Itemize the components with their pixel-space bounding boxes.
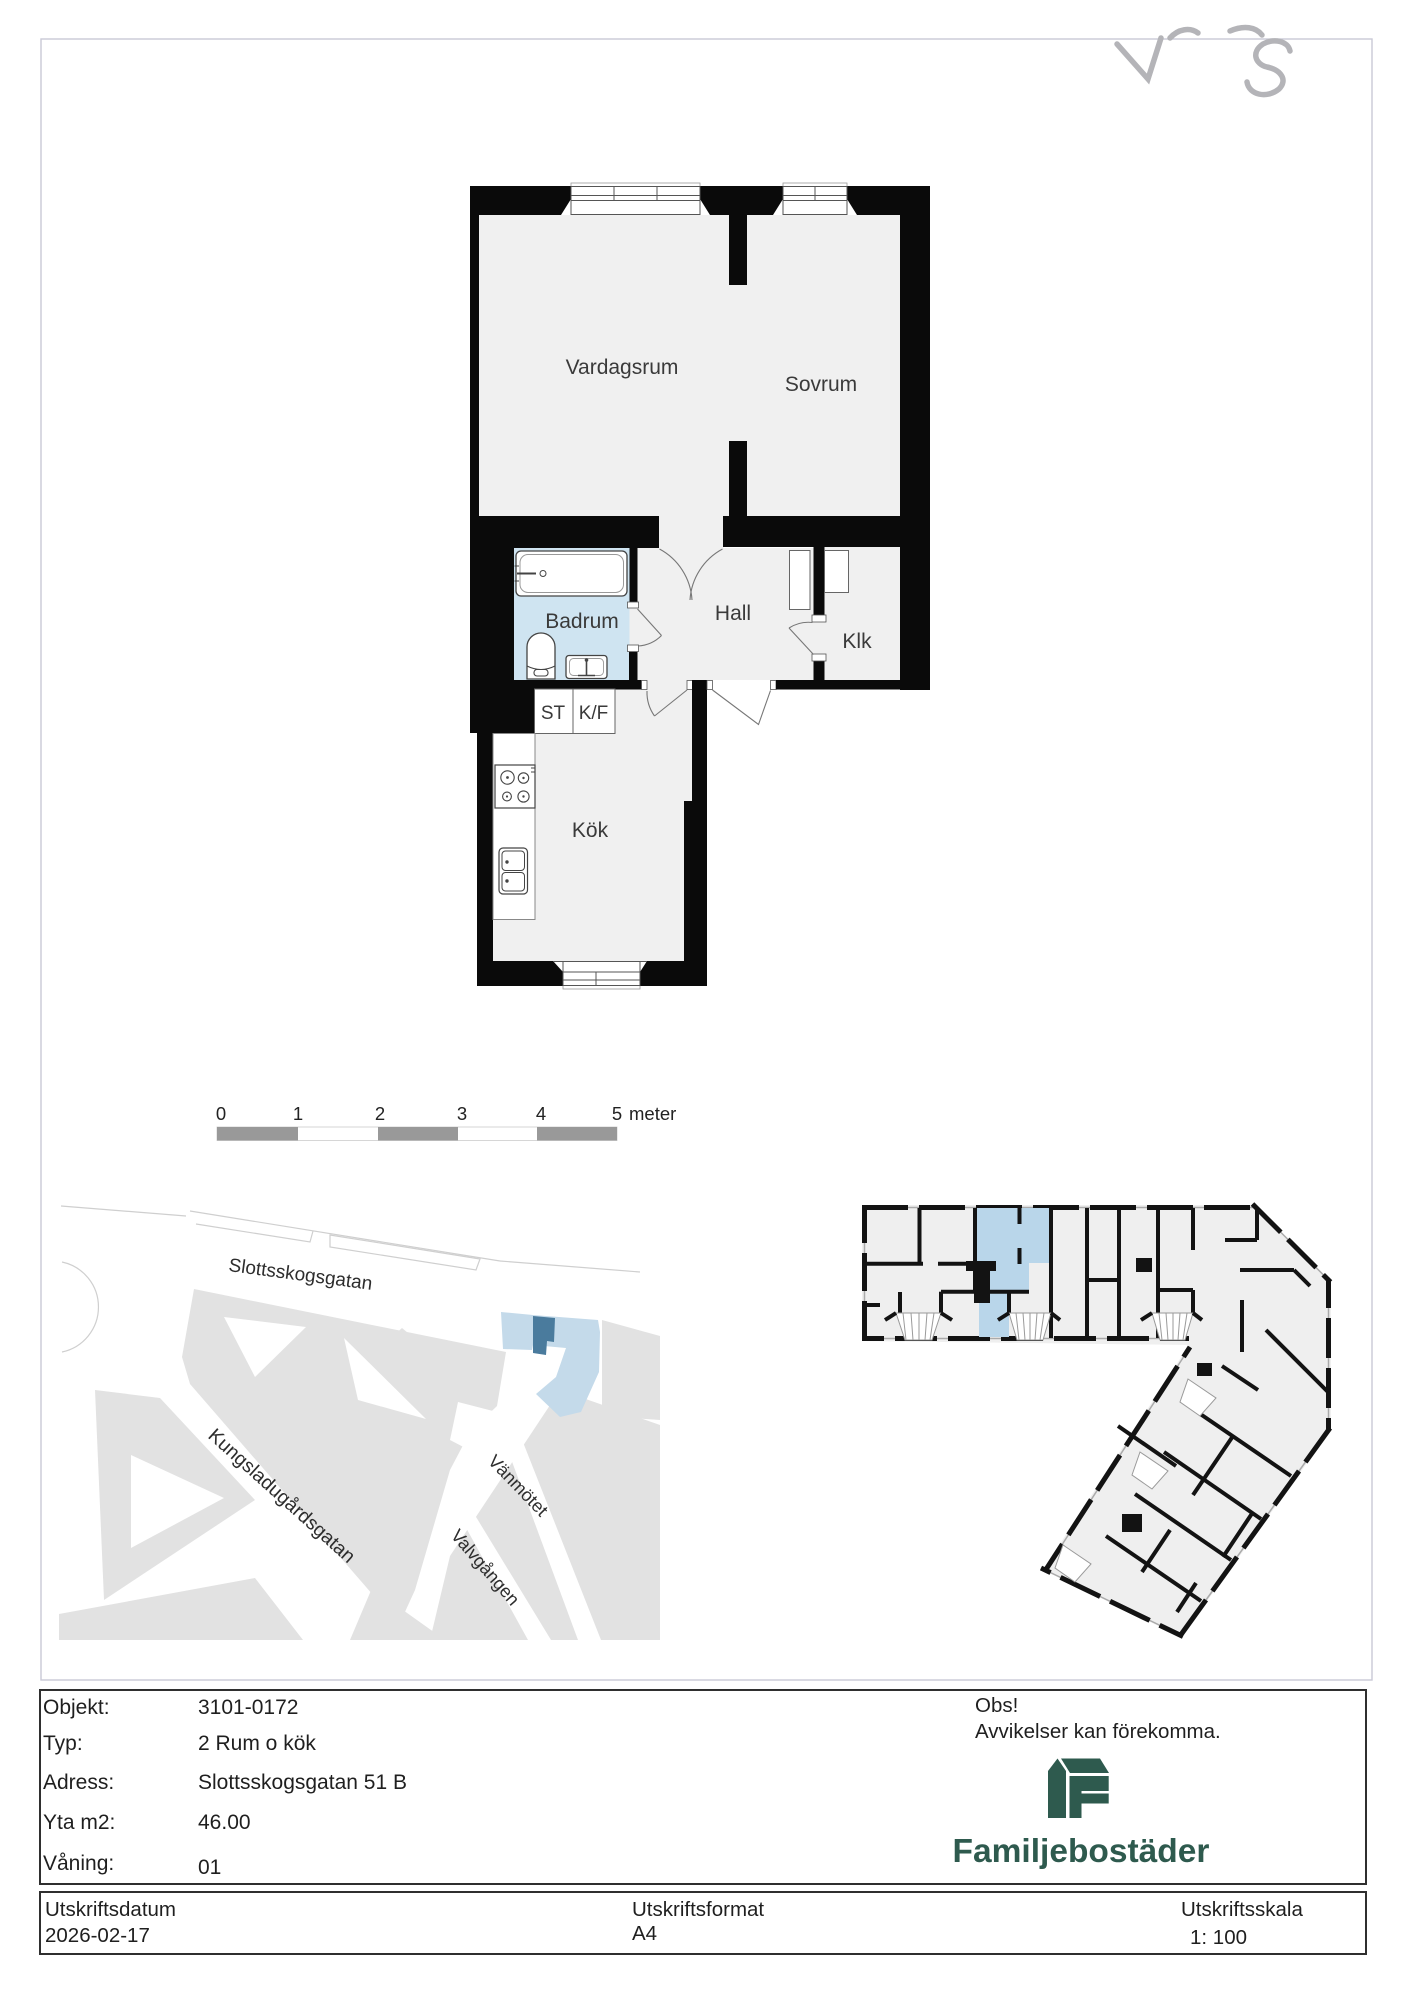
svg-text:1: 1	[293, 1103, 303, 1124]
svg-text:K/F: K/F	[579, 703, 609, 724]
svg-text:3: 3	[457, 1103, 467, 1124]
svg-text:Utskriftsskala: Utskriftsskala	[1181, 1898, 1303, 1921]
svg-text:ST: ST	[541, 703, 566, 724]
svg-text:2 Rum o kök: 2 Rum o kök	[198, 1732, 316, 1755]
svg-text:Våning:: Våning:	[43, 1852, 114, 1875]
svg-text:Badrum: Badrum	[545, 610, 619, 633]
svg-text:1: 100: 1: 100	[1190, 1926, 1247, 1949]
svg-text:meter: meter	[629, 1103, 676, 1124]
svg-text:Klk: Klk	[842, 630, 872, 653]
svg-text:Yta m2:: Yta m2:	[43, 1811, 115, 1834]
svg-text:3101-0172: 3101-0172	[198, 1696, 298, 1719]
svg-text:2: 2	[375, 1103, 385, 1124]
svg-text:Sovrum: Sovrum	[785, 373, 857, 396]
svg-text:Slottsskogsgatan 51 B: Slottsskogsgatan 51 B	[198, 1771, 407, 1794]
svg-text:01: 01	[198, 1856, 221, 1879]
svg-text:A4: A4	[632, 1922, 657, 1945]
svg-text:4: 4	[536, 1103, 546, 1124]
svg-text:Typ:: Typ:	[43, 1732, 83, 1755]
svg-text:Utskriftsdatum: Utskriftsdatum	[45, 1898, 176, 1921]
svg-text:46.00: 46.00	[198, 1811, 251, 1834]
svg-text:Familjebostäder: Familjebostäder	[953, 1833, 1210, 1870]
svg-text:Hall: Hall	[715, 602, 751, 625]
svg-text:Kök: Kök	[572, 819, 609, 842]
svg-text:Objekt:: Objekt:	[43, 1696, 110, 1719]
svg-text:5: 5	[612, 1103, 622, 1124]
svg-text:0: 0	[216, 1103, 226, 1124]
svg-text:Adress:: Adress:	[43, 1771, 114, 1794]
svg-text:2026-02-17: 2026-02-17	[45, 1924, 150, 1947]
svg-text:Avvikelser kan förekomma.: Avvikelser kan förekomma.	[975, 1720, 1221, 1743]
svg-text:Utskriftsformat: Utskriftsformat	[632, 1898, 764, 1921]
svg-text:Vardagsrum: Vardagsrum	[566, 356, 679, 379]
svg-text:Obs!: Obs!	[975, 1694, 1018, 1717]
